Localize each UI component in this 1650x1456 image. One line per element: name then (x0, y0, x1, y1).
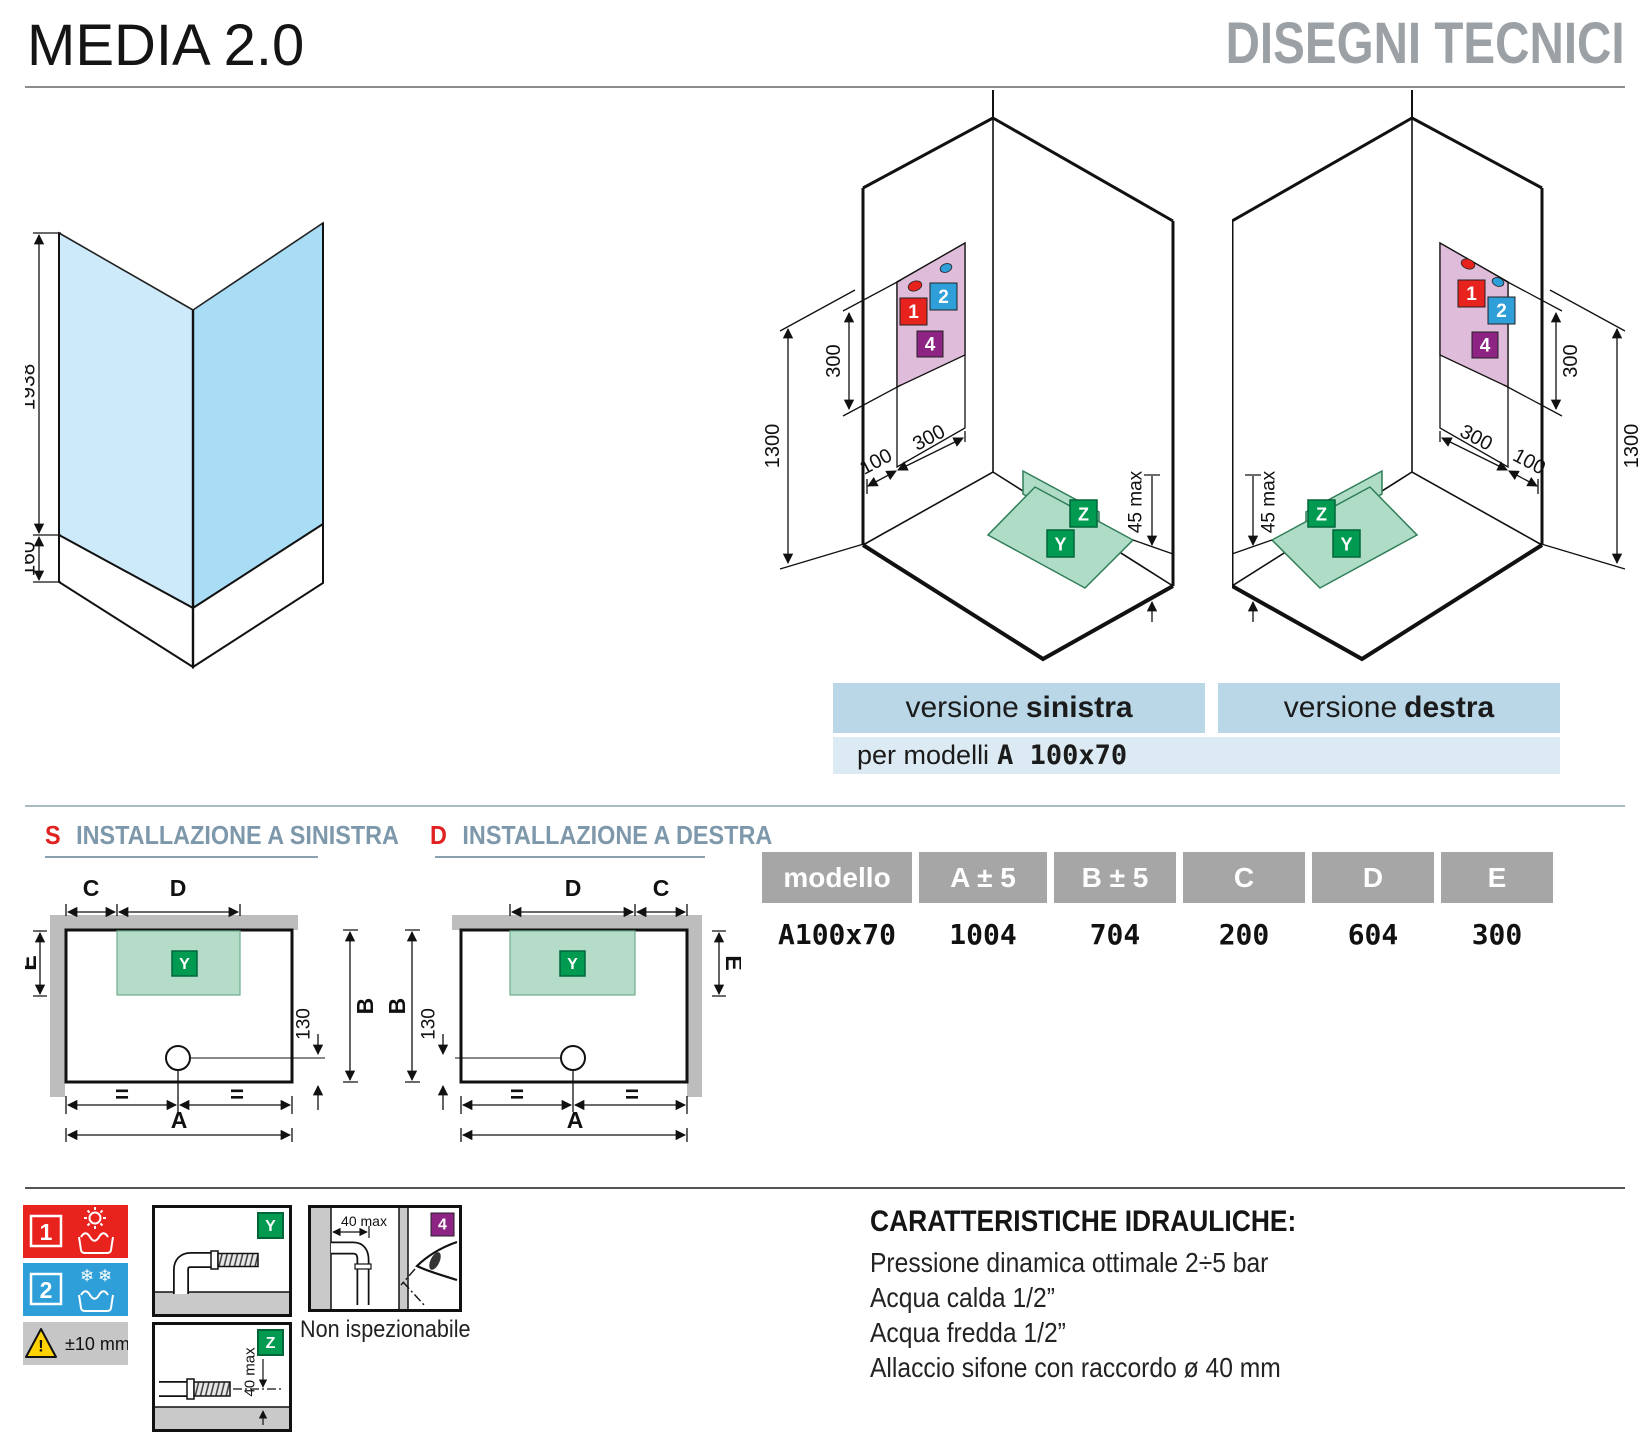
section-divider-2 (25, 1187, 1625, 1189)
glass-corner-drawing: 1938 160 (25, 195, 340, 675)
table-row: A100x70 1004 704 200 604 300 (762, 912, 1562, 956)
inspection-dim-label: 40 max (341, 1213, 387, 1229)
dim-c: C (653, 875, 670, 901)
tolerance-value: ±10 mm (65, 1334, 128, 1354)
cell-c: 200 (1183, 912, 1305, 956)
plan-left-letter: S (45, 820, 61, 850)
marker-y: Y (1054, 535, 1066, 555)
table-header-c: C (1183, 852, 1305, 903)
downpipe-elbow-icon (331, 1248, 371, 1305)
models-label: per modelli (857, 740, 989, 771)
hydraulics-line: Acqua calda 1/2” (870, 1280, 1296, 1315)
hydraulics-line: Pressione dinamica ottimale 2÷5 bar (870, 1245, 1296, 1280)
legend-hot-number: 1 (40, 1219, 53, 1245)
wall-pipe-icon (159, 1379, 230, 1399)
marker-y: Y (567, 956, 578, 973)
iso-drawing-sinistra: 1 2 4 Y Z 300 1300 100 300 45 max (755, 90, 1175, 670)
marker-4: 4 (438, 1217, 447, 1234)
sun-icon (84, 1207, 106, 1229)
marker-4: 4 (925, 335, 936, 356)
cell-a: 1004 (919, 912, 1047, 956)
version-left-band: versione sinistra (833, 683, 1205, 733)
legend-cold-number: 2 (40, 1277, 53, 1303)
table-header-b: B ± 5 (1054, 852, 1176, 903)
table-header-a: A ± 5 (919, 852, 1047, 903)
legend-tolerance: ! ±10 mm (23, 1322, 128, 1365)
marker-2: 2 (938, 287, 949, 308)
cell-d: 604 (1312, 912, 1434, 956)
dim-label-1300: 1300 (762, 424, 784, 469)
table-header-row: modello A ± 5 B ± 5 C D E (762, 852, 1562, 903)
hydraulics-block: CARATTERISTICHE IDRAULICHE: Pressione di… (870, 1205, 1296, 1385)
dim-a: A (171, 1107, 188, 1133)
dim-label-300-vertical: 300 (823, 344, 845, 377)
iso-drawing-destra: 1 2 4 Y Z 300 1300 100 300 45 max (1232, 90, 1650, 670)
marker-z: Z (266, 1335, 276, 1352)
cell-e: 300 (1441, 912, 1553, 956)
eye-icon (417, 1242, 457, 1280)
legend-inspection-box: 40 max 4 (308, 1205, 462, 1312)
plan-left-header: S INSTALLAZIONE A SINISTRA (45, 820, 399, 851)
legend-cold-water: 2 ❄ ❄ (23, 1263, 128, 1316)
equal-mark: = (625, 1082, 639, 1109)
cell-b: 704 (1054, 912, 1176, 956)
models-value: A 100x70 (997, 740, 1127, 771)
dim-label-45max: 45 max (1259, 470, 1280, 533)
dim-a: A (567, 1107, 584, 1133)
marker-z: Z (1316, 505, 1327, 525)
dim-label-1938: 1938 (25, 364, 40, 411)
table-header-e: E (1441, 852, 1553, 903)
svg-text:!: ! (38, 1337, 44, 1356)
hydraulics-line: Acqua fredda 1/2” (870, 1315, 1296, 1350)
equal-mark: = (115, 1082, 129, 1109)
cell-modello: A100x70 (762, 912, 912, 956)
marker-1: 1 (1466, 284, 1477, 305)
plan-right-title: INSTALLAZIONE A DESTRA (462, 820, 772, 850)
inspection-caption: Non ispezionabile (300, 1316, 458, 1344)
section-title: DISEGNI TECNICI (1226, 10, 1625, 77)
table-header-d: D (1312, 852, 1434, 903)
hydraulics-title: CARATTERISTICHE IDRAULICHE: (870, 1205, 1296, 1239)
plan-right-letter: D (430, 820, 447, 850)
marker-y: Y (265, 1218, 276, 1235)
dim-d: D (565, 875, 582, 901)
hot-water-basin-icon (79, 1233, 113, 1253)
version-right-band: versione destra (1218, 683, 1560, 733)
version-right-bold: destra (1404, 691, 1494, 725)
dim-d: D (170, 875, 187, 901)
version-bands: versione sinistra versione destra per mo… (833, 683, 1560, 774)
dim-label-1300: 1300 (1621, 424, 1643, 469)
marker-1: 1 (908, 302, 919, 323)
marker-y: Y (179, 956, 190, 973)
plan-left-title: INSTALLAZIONE A SINISTRA (76, 820, 399, 850)
version-left-label: versione (905, 691, 1018, 725)
marker-y: Y (1340, 535, 1352, 555)
section-divider-1 (25, 805, 1625, 807)
header-divider (25, 86, 1625, 88)
snowflake-icon: ❄ (80, 1267, 94, 1286)
marker-z: Z (1078, 505, 1089, 525)
models-band: per modelli A 100x70 (833, 737, 1560, 774)
dim-130: 130 (419, 1008, 440, 1040)
dim-130: 130 (294, 1008, 315, 1040)
dim-label-160: 160 (25, 541, 40, 576)
plan-drawing-destra: Y D C E B 130 = = A (383, 858, 741, 1150)
legend-y-box: Y (152, 1205, 292, 1317)
dim-c: C (83, 875, 100, 901)
drain-elbow-pipe-icon (181, 1251, 258, 1294)
version-left-bold: sinistra (1026, 691, 1133, 725)
page-title: MEDIA 2.0 (27, 12, 304, 79)
technical-sheet-page: MEDIA 2.0 DISEGNI TECNICI 1938 160 (0, 0, 1650, 1456)
dim-label-300-vertical: 300 (1560, 344, 1582, 377)
dimensions-table: modello A ± 5 B ± 5 C D E A100x70 1004 7… (762, 852, 1562, 956)
snowflake-icon: ❄ (98, 1267, 112, 1286)
cold-water-basin-icon (79, 1291, 113, 1311)
z-dim-label: 40 max (242, 1347, 259, 1397)
marker-4: 4 (1480, 336, 1491, 357)
dim-e: E (25, 955, 41, 970)
dim-e: E (721, 955, 741, 970)
dim-b: B (384, 998, 410, 1015)
equal-mark: = (510, 1082, 524, 1109)
plan-drawing-sinistra: Y C D E B 130 = = A (25, 858, 377, 1150)
equal-mark: = (230, 1082, 244, 1109)
marker-2: 2 (1496, 301, 1507, 322)
legend-hot-water: 1 (23, 1205, 128, 1258)
legend-z-box: 40 max Z (152, 1322, 292, 1432)
dim-label-45max: 45 max (1126, 470, 1147, 533)
dim-b: B (352, 998, 377, 1015)
hydraulics-line: Allaccio sifone con raccordo ø 40 mm (870, 1350, 1296, 1385)
version-right-label: versione (1284, 691, 1397, 725)
plan-right-header: D INSTALLAZIONE A DESTRA (430, 820, 772, 851)
table-header-modello: modello (762, 852, 912, 903)
